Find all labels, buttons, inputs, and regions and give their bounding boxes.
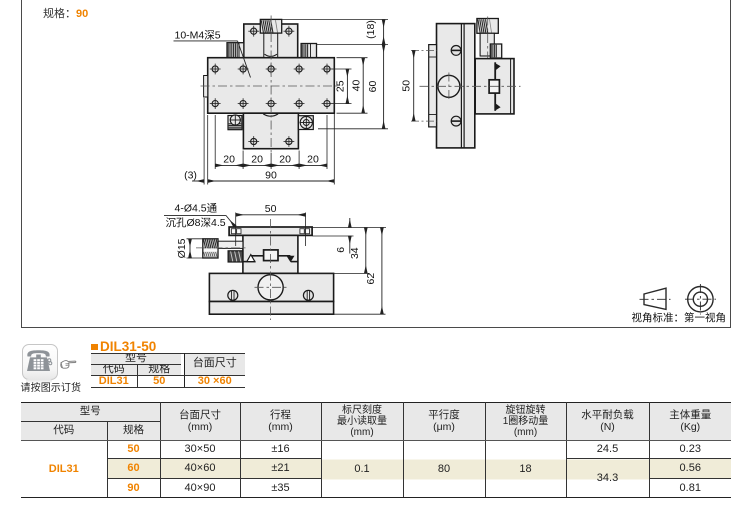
svg-text:40: 40 — [350, 80, 362, 92]
svg-text:25: 25 — [335, 80, 347, 92]
svg-text:(3): (3) — [184, 169, 197, 181]
svg-text:50: 50 — [265, 203, 277, 215]
svg-text:34: 34 — [349, 247, 361, 259]
svg-text:10-M4深5: 10-M4深5 — [175, 30, 221, 42]
svg-text:20: 20 — [223, 154, 235, 166]
svg-text:20: 20 — [251, 154, 263, 166]
svg-text:50: 50 — [401, 80, 413, 92]
svg-text:20: 20 — [279, 154, 291, 166]
svg-text:20: 20 — [307, 154, 319, 166]
svg-text:60: 60 — [367, 81, 379, 93]
svg-text:62: 62 — [365, 273, 377, 285]
svg-text:视角标准：第一视角: 视角标准：第一视角 — [632, 311, 727, 324]
svg-text:(18): (18) — [365, 20, 377, 39]
svg-text:6: 6 — [335, 247, 347, 253]
svg-text:Ø15: Ø15 — [176, 238, 188, 258]
svg-text:4-Ø4.5通: 4-Ø4.5通 — [175, 203, 218, 215]
svg-text:90: 90 — [265, 169, 277, 181]
svg-text:沉孔Ø8深4.5: 沉孔Ø8深4.5 — [166, 216, 226, 229]
